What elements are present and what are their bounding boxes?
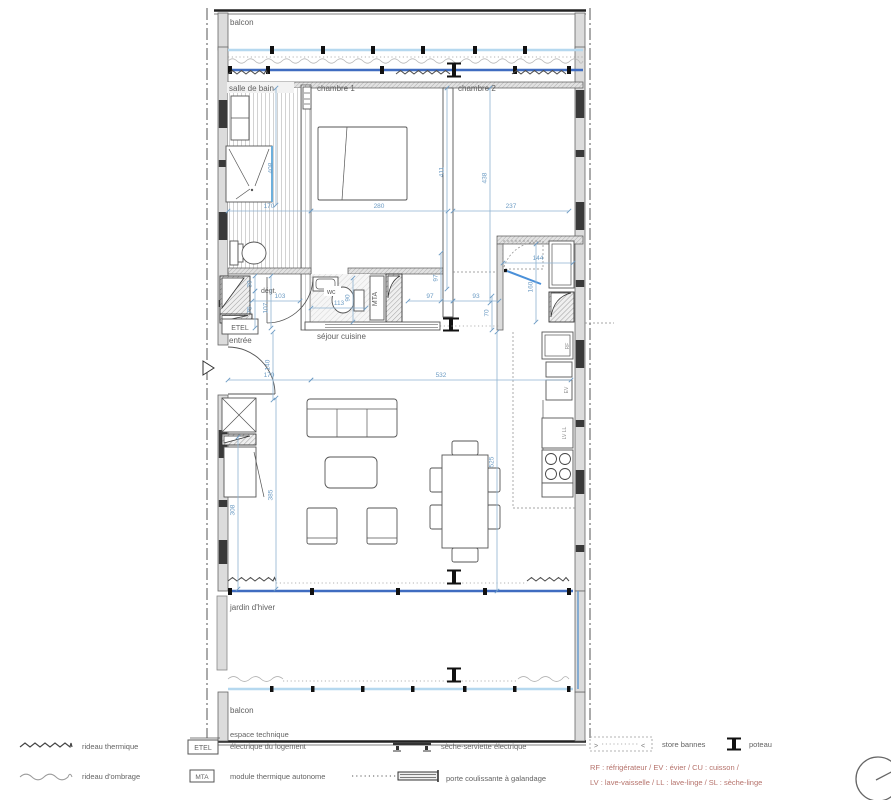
legend-poteau: poteau <box>749 740 772 749</box>
fridge: RF <box>542 332 573 359</box>
entry-closet <box>549 292 574 322</box>
legend-porte-coulissante: porte coulissante à galandage <box>446 774 546 783</box>
hall-closet-x <box>222 398 256 432</box>
sofa <box>307 399 397 437</box>
bed <box>318 127 407 200</box>
entrance-arrow <box>203 361 214 375</box>
balcony-top: balcon <box>228 18 583 88</box>
wall-chambre1-2 <box>443 88 453 317</box>
dim-wc-width: 113 <box>334 300 345 307</box>
dim-sejour-height: 525 <box>489 456 496 467</box>
legend-store-bannes: store bannes <box>662 740 706 749</box>
dim-sejour-170: 170 <box>264 372 275 379</box>
dim-bath-height: 408 <box>268 162 275 173</box>
coffee-table <box>325 457 377 488</box>
dim-ch2-height: 438 <box>482 172 489 183</box>
dim-door-height: 140 <box>265 359 272 370</box>
legend-abbrev-line1: RF : réfrigérateur / EV : évier / CU : c… <box>590 763 740 772</box>
dim-closet-75: 75 <box>247 306 254 314</box>
legend-mta-symbol: MTA <box>190 770 214 782</box>
legend-rideau-thermique: rideau thermique <box>82 742 138 751</box>
armchair-2 <box>367 508 397 544</box>
room-sejour: séjour cuisine <box>307 332 500 562</box>
wall-right <box>575 47 585 591</box>
dim-ch2-width: 237 <box>506 203 517 210</box>
dim-entry-width: 144 <box>533 255 544 262</box>
dining-table <box>442 455 488 548</box>
dim-wc-height: 90 <box>345 294 352 302</box>
rideau-ombrage-bottom-2 <box>518 677 569 682</box>
dim-sejour-width: 532 <box>436 372 447 379</box>
dim-degt-width: 103 <box>275 293 286 300</box>
room-label-wc: wc <box>326 289 336 296</box>
armchair-1 <box>307 508 337 544</box>
legend-mta: module thermique autonome <box>230 772 325 781</box>
etel-box: ETEL <box>222 319 260 334</box>
room-label-salle-de-bain: salle de bain <box>229 84 274 93</box>
washbasin <box>231 96 249 140</box>
entry-closet-left <box>220 276 250 320</box>
legend-rideau-thermique-symbol <box>20 743 72 747</box>
rideau-thermique-bottom-2 <box>527 578 569 582</box>
floor-plan-sheet: balcon salle de bain <box>0 0 891 800</box>
wc-closet <box>386 274 402 322</box>
legend-poteau-symbol <box>727 738 741 750</box>
legend-etel-line2: électrique du logement <box>230 742 307 751</box>
poteau-jardin <box>447 668 461 682</box>
dim-ch1-height: 411 <box>439 166 446 177</box>
wardrobe <box>224 447 264 497</box>
sink: EV <box>546 362 572 400</box>
towel-dryer <box>303 87 311 109</box>
cooktop <box>542 450 573 483</box>
legend-etel-line1: espace technique <box>230 730 289 739</box>
dim-bath-width: 170 <box>264 203 275 210</box>
jardin-dhiver: jardin d'hiver balcon <box>217 570 578 715</box>
legend-abbrev-line2: LV : lave-vaisselle / LL : lave-linge / … <box>590 778 762 787</box>
legend-store-arrow-right: < <box>641 743 645 750</box>
legend-etel-symbol: ETEL <box>188 738 220 754</box>
dim-entry-height: 160 <box>528 281 535 292</box>
legend-store-arrow-left: > <box>594 743 598 750</box>
legend-seche-serviette-symbol <box>393 744 431 751</box>
room-label-balcon-bottom: balcon <box>230 706 254 715</box>
dishwasher-washer: LV LL <box>542 418 573 448</box>
room-wc: wc MTA <box>305 274 440 330</box>
dim-pass-h1: 97 <box>433 274 440 282</box>
shower <box>226 146 272 202</box>
rideau-ombrage-top <box>228 59 583 63</box>
room-label-balcon-top: balcon <box>230 18 254 27</box>
dim-pass-w2: 93 <box>472 293 480 300</box>
legend-seche-serviette: sèche-serviette électrique <box>441 742 526 751</box>
dishwasher-label: LV LL <box>562 426 568 439</box>
legend-store-bannes-symbol: > < <box>590 737 652 751</box>
legend-rideau-ombrage: rideau d'ombrage <box>82 772 140 781</box>
room-label-chambre-1: chambre 1 <box>317 84 355 93</box>
mta-label: MTA <box>372 292 379 307</box>
poteau-sejour <box>447 570 461 584</box>
room-label-jardin: jardin d'hiver <box>229 603 275 612</box>
toilet-bathroom <box>230 241 266 265</box>
sliding-door-blue <box>504 269 541 284</box>
kitchen: RF EV LV LL <box>513 332 575 508</box>
room-label-chambre-2: chambre 2 <box>458 84 496 93</box>
sink-label: EV <box>564 386 570 393</box>
dim-ch1-width: 280 <box>374 203 385 210</box>
logo-mark <box>856 757 891 800</box>
dim-degt-height: 107 <box>263 302 270 313</box>
etel-label: ETEL <box>231 325 249 332</box>
fridge-label: RF <box>565 343 571 350</box>
dim-closet-30: 30 <box>247 280 254 288</box>
entry-cabinet <box>549 241 574 288</box>
legend-etel-tag: ETEL <box>194 745 212 752</box>
rideau-ombrage-bottom-1 <box>228 677 283 682</box>
legend-rideau-ombrage-symbol <box>20 774 72 780</box>
legend-porte-coulissante-symbol <box>352 770 438 782</box>
room-label-entree: entrée <box>229 336 252 345</box>
dim-pass-w1: 97 <box>426 293 434 300</box>
legend-mta-tag: MTA <box>195 774 209 781</box>
mta-unit: MTA <box>370 276 384 320</box>
dim-pass-h2: 70 <box>484 309 491 317</box>
pier <box>217 596 227 670</box>
rideau-thermique-bottom-1 <box>228 578 276 582</box>
dim-left-height: 385 <box>268 489 275 500</box>
room-label-sejour: séjour cuisine <box>317 332 366 341</box>
dim-closet-height: 308 <box>230 504 237 515</box>
poteau-chambre2 <box>443 318 459 331</box>
floor-plan-drawing: balcon salle de bain <box>0 0 891 800</box>
pocket-door-wall <box>305 322 440 330</box>
